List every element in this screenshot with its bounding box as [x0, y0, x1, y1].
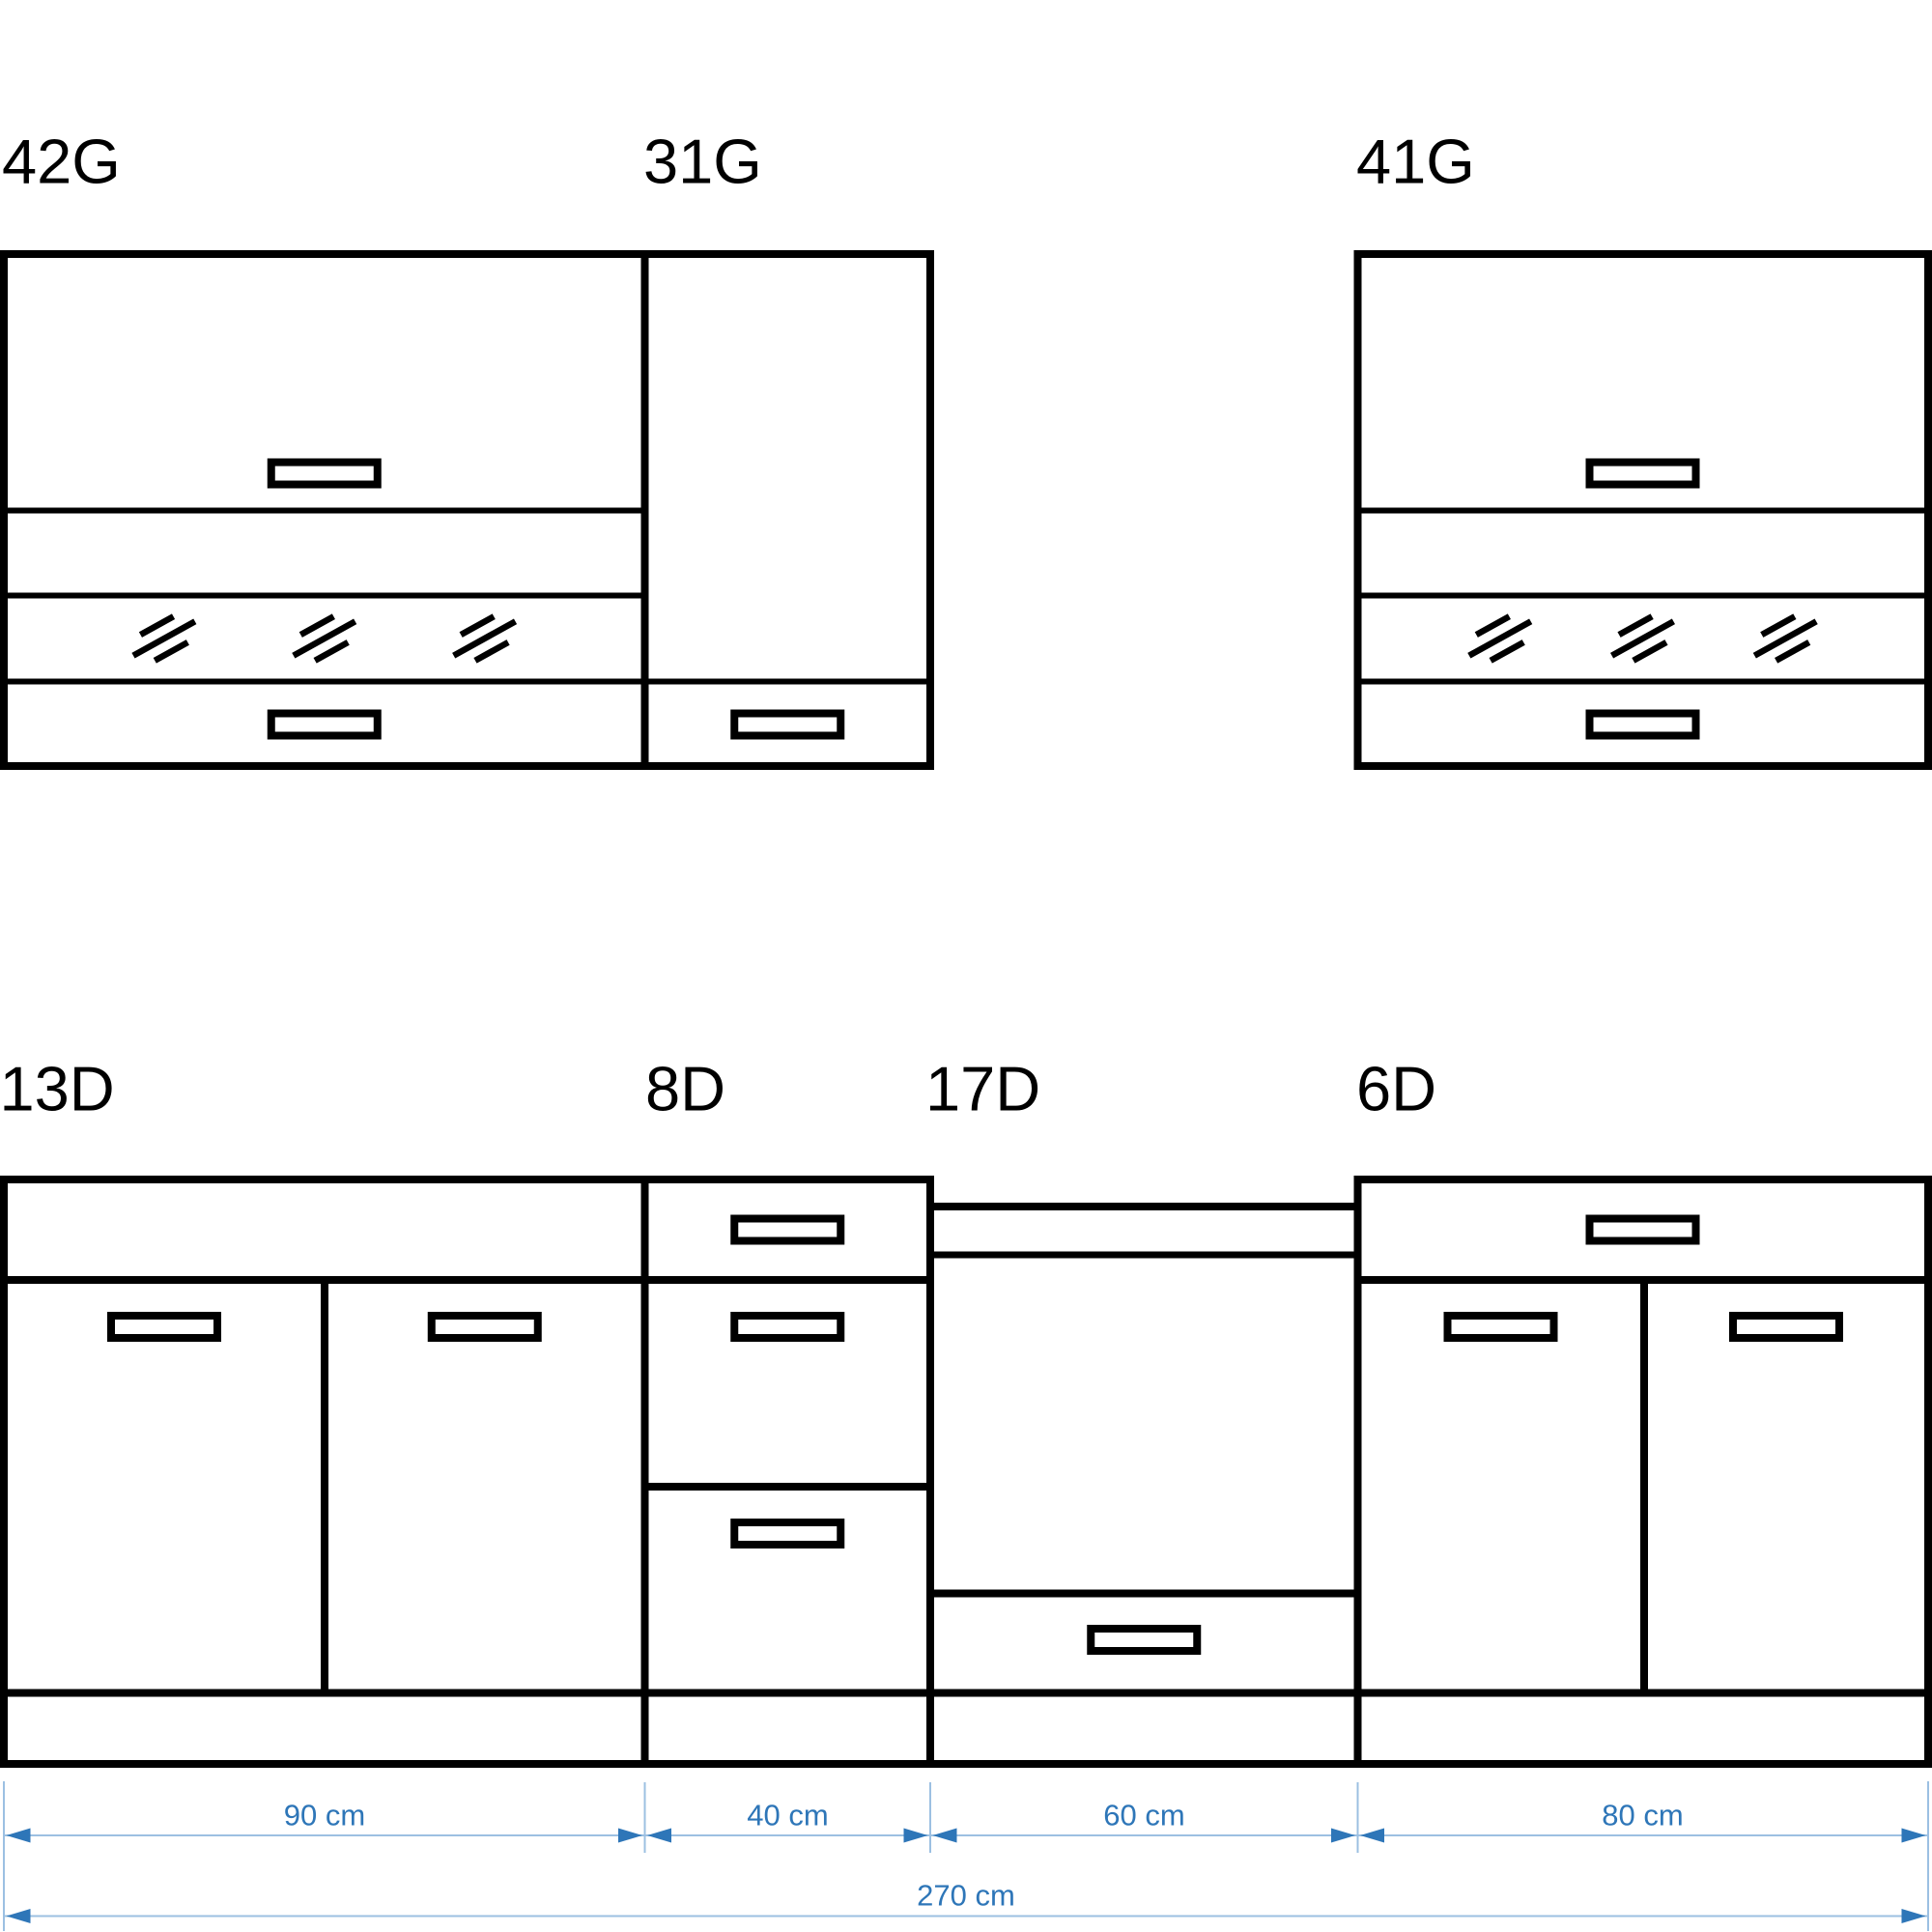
svg-text:6D: 6D	[1356, 1054, 1436, 1124]
svg-text:41G: 41G	[1356, 127, 1475, 197]
svg-text:42G: 42G	[2, 127, 121, 197]
svg-text:60 cm: 60 cm	[1103, 1799, 1184, 1833]
svg-text:80 cm: 80 cm	[1602, 1799, 1683, 1833]
svg-text:31G: 31G	[643, 127, 762, 197]
svg-text:17D: 17D	[925, 1054, 1040, 1124]
svg-text:13D: 13D	[0, 1054, 115, 1124]
svg-text:90 cm: 90 cm	[284, 1799, 365, 1833]
svg-text:270 cm: 270 cm	[917, 1879, 1015, 1913]
svg-text:40 cm: 40 cm	[747, 1799, 828, 1833]
svg-text:8D: 8D	[645, 1054, 725, 1124]
